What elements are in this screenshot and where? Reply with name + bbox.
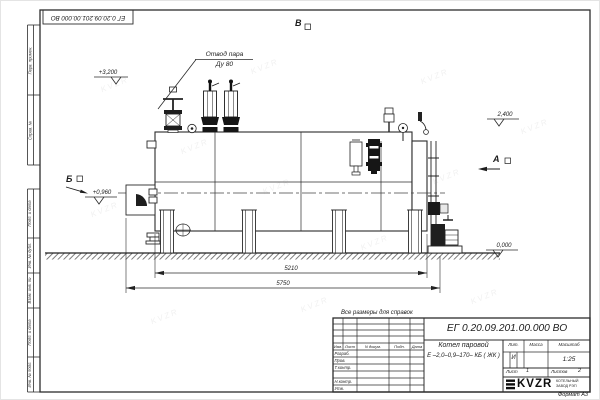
row-label-nkontr: Н.контр. bbox=[335, 380, 353, 385]
kvzr-logo-icon bbox=[506, 380, 515, 390]
elevation-value-0000: 0,000 bbox=[488, 243, 520, 249]
margin-label-podp-data-1: Подп. и дата bbox=[27, 189, 34, 238]
dimension-value-5210: 5210 bbox=[273, 266, 309, 272]
support-leg bbox=[407, 210, 423, 253]
margin-label-inv-podl: Инв. № подл. bbox=[27, 357, 34, 392]
col-header-ndokum: N докум. bbox=[357, 345, 389, 349]
support-leg bbox=[159, 210, 175, 253]
view-label-b: Б bbox=[66, 175, 72, 185]
view-ref-box-v bbox=[305, 24, 311, 30]
row-label-prov: Пров. bbox=[335, 359, 346, 364]
drawing-canvas bbox=[0, 0, 600, 400]
shutoff-valve-icon bbox=[384, 108, 394, 132]
elevation-value-0960: +0,960 bbox=[86, 190, 118, 196]
lit-value: И bbox=[510, 355, 517, 361]
format-label: Формат А3 bbox=[538, 393, 588, 399]
revision-stamp-designation: ЕГ 0.20.09.201.00.000 ВО bbox=[43, 10, 133, 24]
row-label-razrab: Разраб. bbox=[335, 352, 350, 357]
sheets-value: 2 bbox=[578, 369, 581, 375]
ground-hatch bbox=[45, 253, 500, 260]
elevation-value-3200: +3,200 bbox=[92, 70, 124, 76]
margin-label-perv-primen: Перв. примен. bbox=[27, 25, 34, 95]
dimension-value-5750: 5750 bbox=[265, 281, 301, 287]
dome-fitting-icon bbox=[188, 124, 196, 132]
masshtab-header: Масштаб bbox=[548, 343, 590, 348]
view-label-v: В bbox=[295, 19, 302, 29]
sheets-label: Листов bbox=[551, 370, 567, 375]
sheet-label: Лист bbox=[506, 370, 518, 375]
col-header-list: Лист bbox=[343, 345, 357, 349]
col-header-data: Дата bbox=[410, 345, 424, 349]
col-header-podp: Подп. bbox=[389, 345, 410, 349]
elevation-mark-2400 bbox=[487, 119, 519, 126]
sheet-value: 1 bbox=[526, 369, 529, 375]
callout-steam-outlet-line2: Ду 80 bbox=[196, 61, 253, 68]
row-label-utv: Утв. bbox=[335, 387, 345, 392]
col-header-izm: Изм. bbox=[333, 345, 343, 349]
scale-value: 1:25 bbox=[548, 356, 590, 363]
product-name-line1: Котел паровой bbox=[424, 342, 503, 350]
margin-label-sprav-no: Справ. № bbox=[27, 95, 34, 165]
company-logo-text: KVZR bbox=[517, 378, 552, 390]
elevation-value-2400: 2,400 bbox=[489, 112, 521, 118]
massa-header: Масса bbox=[524, 343, 548, 348]
company-name-line1: КОТЕЛЬНЫЙ bbox=[556, 380, 579, 384]
margin-label-vzam-inv: Взам. инв. № bbox=[27, 273, 34, 308]
company-name-line2: ЗАВОД РЭП bbox=[556, 385, 577, 389]
title-block-designation: ЕГ 0.20.09.201.00.000 ВО bbox=[424, 319, 590, 339]
view-label-a: А bbox=[493, 155, 500, 165]
safety-valve-icon bbox=[201, 80, 219, 133]
fitting-icon bbox=[418, 112, 428, 134]
margin-label-inv-dubl: Инв. № дубл. bbox=[27, 238, 34, 273]
row-label-tkontr: Т.контр. bbox=[335, 366, 352, 371]
reference-note: Все размеры для справок bbox=[341, 310, 413, 316]
margin-label-podp-data-2: Подп. и дата bbox=[27, 308, 34, 357]
feed-pump-icon bbox=[428, 215, 462, 253]
lit-header: Лит. bbox=[503, 343, 524, 348]
steam-outlet-valve-icon bbox=[163, 87, 183, 133]
safety-valve-icon bbox=[222, 80, 240, 133]
support-leg bbox=[241, 210, 257, 253]
product-name-line2: Е –2,0–0,9–170– КБ ( ЖК ) bbox=[424, 353, 503, 359]
callout-steam-outlet-line1: Отвод пара bbox=[196, 51, 253, 58]
support-leg bbox=[331, 210, 347, 253]
